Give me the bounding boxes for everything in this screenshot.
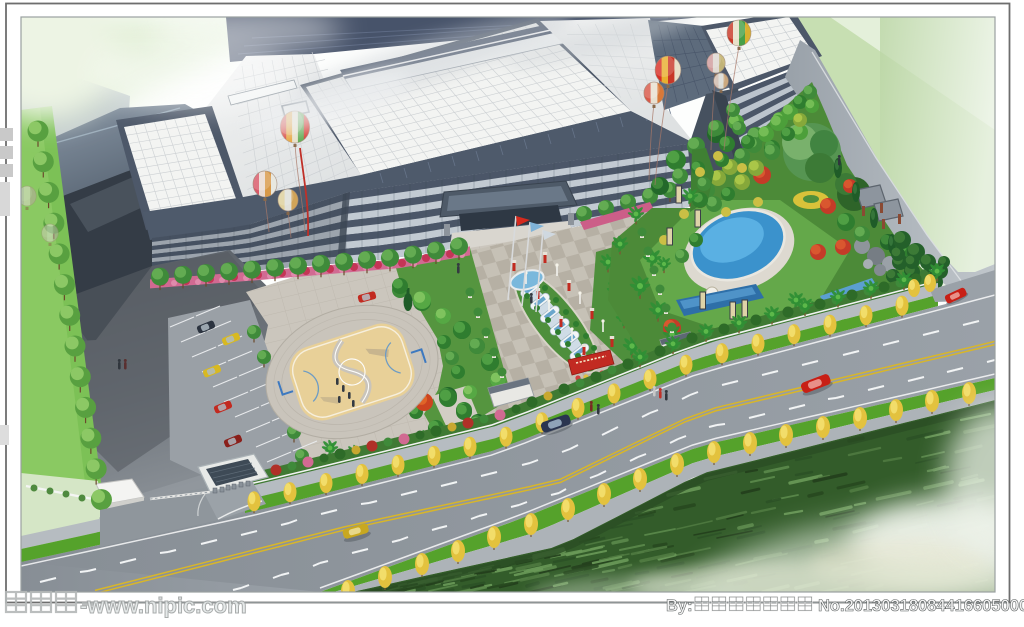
svg-text:No.20130318084416605000: No.20130318084416605000 (818, 597, 1024, 615)
svg-text:By:: By: (666, 597, 693, 615)
svg-text:-www.nipic.com: -www.nipic.com (80, 593, 247, 618)
